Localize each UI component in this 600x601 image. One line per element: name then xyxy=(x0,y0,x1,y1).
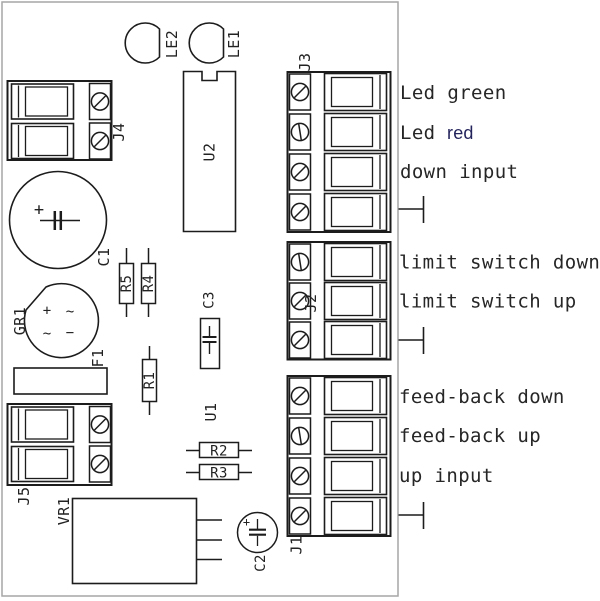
terminal-block-j1-ref: J1 xyxy=(288,535,306,554)
regulator-vr1-ref: VR1 xyxy=(55,497,73,526)
gr1-minus-mark: − xyxy=(66,325,74,341)
terminal-block-j5-ref: J5 xyxy=(15,486,33,505)
pin-label-limit-switch-up: limit switch up xyxy=(399,291,577,313)
ground-symbol xyxy=(399,327,424,354)
capacitor-c1-ref: C1 xyxy=(95,247,113,266)
pin-label-led-green: Led green xyxy=(400,82,507,104)
resistor-r4-ref: R4 xyxy=(141,275,157,293)
ground-symbol xyxy=(399,196,424,223)
pin-label-led-red-word: red xyxy=(447,123,474,143)
gr1-ac-mark: ~ xyxy=(43,326,51,342)
resistor-r2-ref: R2 xyxy=(210,444,228,460)
fuse-f1-ref: F1 xyxy=(89,348,107,367)
led-le2-ref: LE2 xyxy=(163,30,181,59)
led-le1-ref: LE1 xyxy=(225,30,243,59)
ic-u1-ref: U1 xyxy=(202,402,220,421)
terminal-block-j3-ref: J3 xyxy=(296,52,314,71)
capacitor-c1-polarity: + xyxy=(34,200,44,220)
pin-label-down-input: down input xyxy=(400,161,518,183)
rectifier-gr1-ref: GR1 xyxy=(11,307,29,336)
capacitor-c3-ref: C3 xyxy=(202,291,218,309)
pin-label-feed-back-up: feed-back up xyxy=(399,425,541,447)
resistor-r5-ref: R5 xyxy=(119,275,135,293)
gr1-ac-mark: ~ xyxy=(66,304,74,320)
gr1-plus-mark: + xyxy=(43,303,51,319)
pcb-layout-screenshot: LE2 LE1 U2 + C1 + ~ ~ − GR1 F1 R5 R4 xyxy=(0,0,600,601)
ground-symbol xyxy=(399,502,424,529)
terminal-block-j2-ref: J2 xyxy=(302,293,320,312)
pin-label-limit-switch-down: limit switch down xyxy=(399,252,600,274)
ic-u2-ref: U2 xyxy=(201,142,219,161)
pin-label-led-red-prefix: Led xyxy=(400,122,436,144)
resistor-r3-ref: R3 xyxy=(210,466,228,482)
capacitor-c2-ref: C2 xyxy=(253,554,269,572)
terminal-block-j4-ref: J4 xyxy=(110,122,128,141)
resistor-r1-ref: R1 xyxy=(142,372,158,390)
pin-label-feed-back-down: feed-back down xyxy=(399,386,565,408)
pcb-layout-drawing: LE2 LE1 U2 + C1 + ~ ~ − GR1 F1 R5 R4 xyxy=(0,0,600,601)
capacitor-c2-polarity: + xyxy=(243,515,250,529)
pin-label-up-input: up input xyxy=(399,465,494,487)
